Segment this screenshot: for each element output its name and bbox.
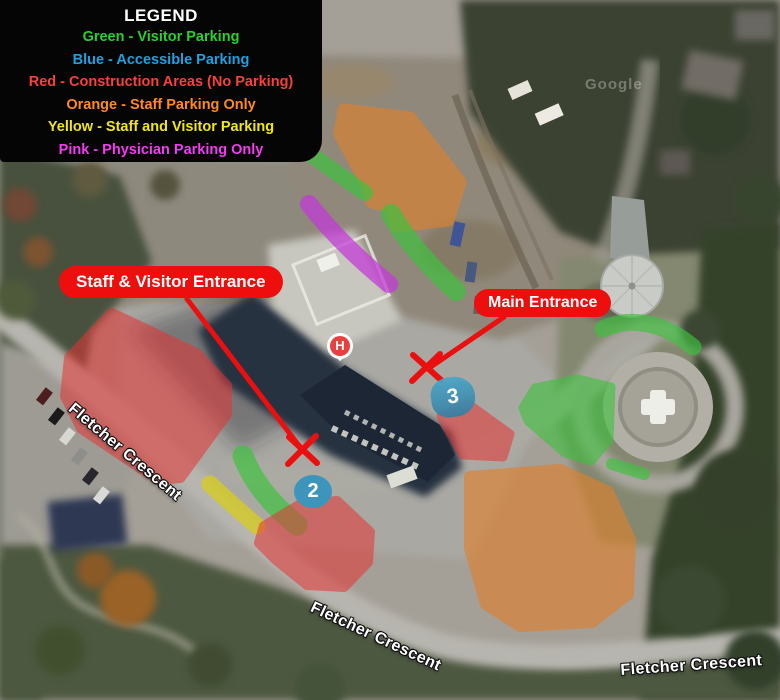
- hospital-icon: H: [330, 336, 350, 356]
- staff-visitor-entrance-callout: Staff & Visitor Entrance: [59, 266, 283, 298]
- legend-title: LEGEND: [0, 6, 322, 26]
- legend-item-physician-parking: Pink - Physician Parking Only: [0, 139, 322, 162]
- legend-item-visitor-parking: Green - Visitor Parking: [0, 26, 322, 49]
- legend-item-staff-visitor-parking: Yellow - Staff and Visitor Parking: [0, 116, 322, 139]
- main-entrance-callout: Main Entrance: [474, 289, 611, 317]
- google-watermark: Google: [585, 76, 643, 93]
- legend-item-staff-parking: Orange - Staff Parking Only: [0, 94, 322, 117]
- hospital-pin: H: [327, 333, 353, 359]
- zone-staff-orange-south: [470, 470, 630, 626]
- legend-item-accessible-parking: Blue - Accessible Parking: [0, 49, 322, 72]
- zone-2-marker: 2: [294, 475, 332, 508]
- helipad: [603, 352, 713, 462]
- legend-item-construction-areas: Red - Construction Areas (No Parking): [0, 71, 322, 94]
- legend-panel: LEGEND Green - Visitor Parking Blue - Ac…: [0, 0, 322, 162]
- parking-map: Google Fletcher Crescent Fletcher Cresce…: [0, 0, 780, 700]
